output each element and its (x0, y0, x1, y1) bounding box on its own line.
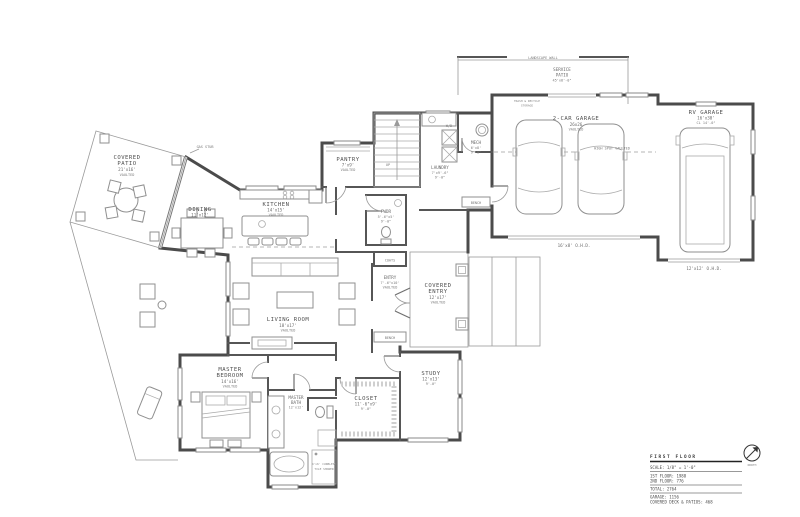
washer-dryer-label: W/D (446, 124, 452, 128)
sheet-title: FIRST FLOOR (650, 454, 697, 460)
svg-text:9'-0": 9'-0" (381, 220, 392, 224)
svg-text:11'-6"x9': 11'-6"x9' (355, 402, 378, 407)
svg-text:12'x17': 12'x17' (429, 295, 447, 300)
svg-text:7'x9': 7'x9' (342, 163, 355, 168)
ohd-label-rv: 12'x12' O.H.D. (686, 266, 721, 271)
armchair (233, 283, 249, 299)
svg-text:VAULTED: VAULTED (341, 168, 356, 172)
nightstand (191, 392, 200, 402)
svg-text:VAULTED: VAULTED (120, 173, 135, 177)
car-top-view (513, 120, 565, 214)
living-furniture (233, 258, 355, 350)
area-line-2nd: 2ND FLOOR: 776 (650, 479, 684, 484)
svg-text:VAULTED: VAULTED (269, 213, 284, 217)
svg-text:18'x17': 18'x17' (279, 323, 297, 328)
room-label-living-room: LIVING ROOM 18'x17' VAULTED (267, 317, 310, 333)
gas-stub-note: GAS STUB (197, 145, 214, 149)
room-label-master-bath: MASTER BATH 12'x12' (288, 395, 304, 410)
svg-text:LAUNDRY: LAUNDRY (431, 165, 449, 170)
svg-text:MECH: MECH (471, 140, 482, 145)
stairs-up-label: UP (386, 163, 390, 167)
svg-text:7'x9'-6": 7'x9'-6" (432, 171, 449, 175)
floor-plan-page: COVERED PATIO 21'x16' VAULTED DINING 11'… (0, 0, 800, 517)
high-spot-note: HIGH SPOT VAULTED (594, 147, 630, 151)
stairs (374, 113, 420, 187)
patio-column (150, 232, 159, 241)
patio-column (76, 212, 85, 221)
bedroom-furniture (191, 392, 261, 447)
svg-text:9'-0": 9'-0" (426, 382, 437, 386)
svg-text:26x26: 26x26 (570, 122, 583, 127)
sofa (252, 258, 338, 276)
room-label-covered-patio: COVERED PATIO 21'x16' VAULTED (113, 155, 140, 177)
armchair (339, 309, 355, 325)
svg-text:ENTRY: ENTRY (384, 275, 397, 280)
windows (178, 93, 755, 489)
svg-text:45'x8'-0": 45'x8'-0" (553, 79, 572, 83)
kitchen-island (242, 216, 308, 236)
svg-text:CL 14'-0": CL 14'-0" (697, 121, 716, 125)
scale-note: SCALE: 1/8" = 1'-0" (650, 465, 696, 470)
floor-plan-drawing: COVERED PATIO 21'x16' VAULTED DINING 11'… (0, 0, 800, 517)
trash-note-line1: TRASH & RECYCLE (514, 99, 540, 103)
armchair (233, 309, 249, 325)
svg-text:12'x12': 12'x12' (289, 406, 304, 410)
coffee-table (277, 292, 313, 308)
svg-text:5'-6"x5': 5'-6"x5' (378, 215, 395, 219)
svg-text:9'-0": 9'-0" (435, 176, 446, 180)
landscape-wall-note: LANDSCAPE WALL (528, 56, 558, 60)
north-arrow-icon (744, 445, 760, 461)
svg-text:VAULTED: VAULTED (569, 128, 584, 132)
room-label-covered-entry: COVERED ENTRY 12'x17' VAULTED (424, 283, 451, 305)
garage-vehicles (513, 120, 734, 252)
patio-column (172, 156, 181, 165)
toilet (382, 227, 391, 238)
svg-text:9'-0": 9'-0" (361, 407, 372, 411)
room-label-service-patio: SERVICE PATIO 45'x8'-0" (553, 67, 572, 83)
room-label-laundry: LAUNDRY 7'x9'-6" 9'-0" (431, 165, 449, 180)
vanity (268, 396, 284, 448)
shower-note-line2: TILE SHOWER (314, 467, 333, 471)
svg-text:16'x30': 16'x30' (697, 116, 715, 121)
bench-label-mud: BENCH (471, 201, 482, 205)
svg-text:21'x16': 21'x16' (118, 167, 136, 172)
room-label-kitchen: KITCHEN 14'x15' VAULTED (262, 202, 289, 217)
shower-note-line1: 4'x6' CURBLESS (312, 462, 337, 466)
porch-column (456, 318, 468, 330)
svg-text:VAULTED: VAULTED (281, 329, 296, 333)
coats-label: COATS (385, 259, 396, 263)
svg-text:VAULTED: VAULTED (223, 385, 238, 389)
svg-text:SERVICE: SERVICE (553, 67, 571, 72)
porch-column (456, 264, 468, 276)
svg-text:VAULTED: VAULTED (431, 301, 446, 305)
rv-top-view (676, 128, 734, 252)
bench-label-entry: BENCH (385, 336, 396, 340)
nightstand (252, 392, 261, 402)
svg-text:6'x8': 6'x8' (471, 146, 482, 150)
title-block: FIRST FLOOR SCALE: 1/8" = 1'-0" 1ST FLOO… (650, 445, 760, 505)
room-label-mech: MECH 6'x8' 9'-0" (471, 140, 482, 155)
chaise-lounge (137, 386, 163, 420)
north-label: NORTH (748, 463, 757, 467)
room-label-pantry: PANTRY 7'x9' VAULTED (336, 157, 359, 172)
area-line-total: TOTAL: 2764 (650, 487, 677, 492)
ohd-label-garage: 16'x8' O.H.D. (558, 243, 591, 248)
svg-text:12'x13': 12'x13' (422, 377, 440, 382)
svg-text:PATIO: PATIO (556, 73, 569, 78)
area-line-covered: COVERED DECK & PATIOS: 468 (650, 500, 713, 505)
svg-text:BATH: BATH (291, 400, 302, 405)
trash-note-line2: STORAGE (521, 104, 533, 108)
svg-text:VAULTED: VAULTED (383, 286, 398, 290)
room-label-dining: DINING 11'x12' (188, 207, 211, 218)
svg-text:PWDR: PWDR (381, 209, 392, 214)
svg-text:9'-0": 9'-0" (471, 151, 482, 155)
room-label-powder: PWDR 5'-6"x5' 9'-0" (378, 209, 395, 224)
toilet (316, 407, 325, 418)
room-label-master-bedroom: MASTER BEDROOM 14'x16' VAULTED (216, 367, 243, 389)
svg-text:14'x15': 14'x15' (267, 208, 285, 213)
svg-text:7'-6"x10': 7'-6"x10' (381, 281, 400, 285)
room-label-rv-garage: RV GARAGE 16'x30' CL 14'-0" (689, 110, 724, 125)
svg-text:11'x12': 11'x12' (191, 213, 209, 218)
patio-column (100, 134, 109, 143)
room-label-entry: ENTRY 7'-6"x10' VAULTED (381, 275, 400, 290)
car-top-view (575, 124, 627, 214)
room-label-study: STUDY 12'x13' 9'-0" (421, 371, 440, 386)
sink (395, 200, 402, 207)
svg-text:14'x16': 14'x16' (221, 379, 239, 384)
room-label-closet: CLOSET 11'-6"x9' 9'-0" (354, 396, 377, 411)
armchair (339, 283, 355, 299)
water-heater (476, 124, 488, 136)
